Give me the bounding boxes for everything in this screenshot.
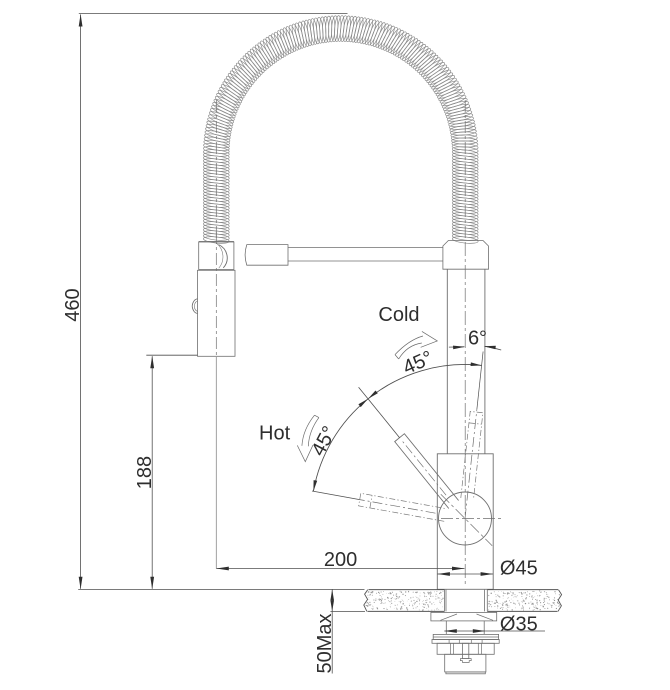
svg-text:Ø35: Ø35 <box>500 613 538 635</box>
svg-text:6°: 6° <box>468 327 487 349</box>
svg-text:Cold: Cold <box>378 304 419 326</box>
svg-text:Ø45: Ø45 <box>500 558 538 580</box>
svg-text:200: 200 <box>324 549 357 571</box>
svg-text:Hot: Hot <box>259 422 291 444</box>
